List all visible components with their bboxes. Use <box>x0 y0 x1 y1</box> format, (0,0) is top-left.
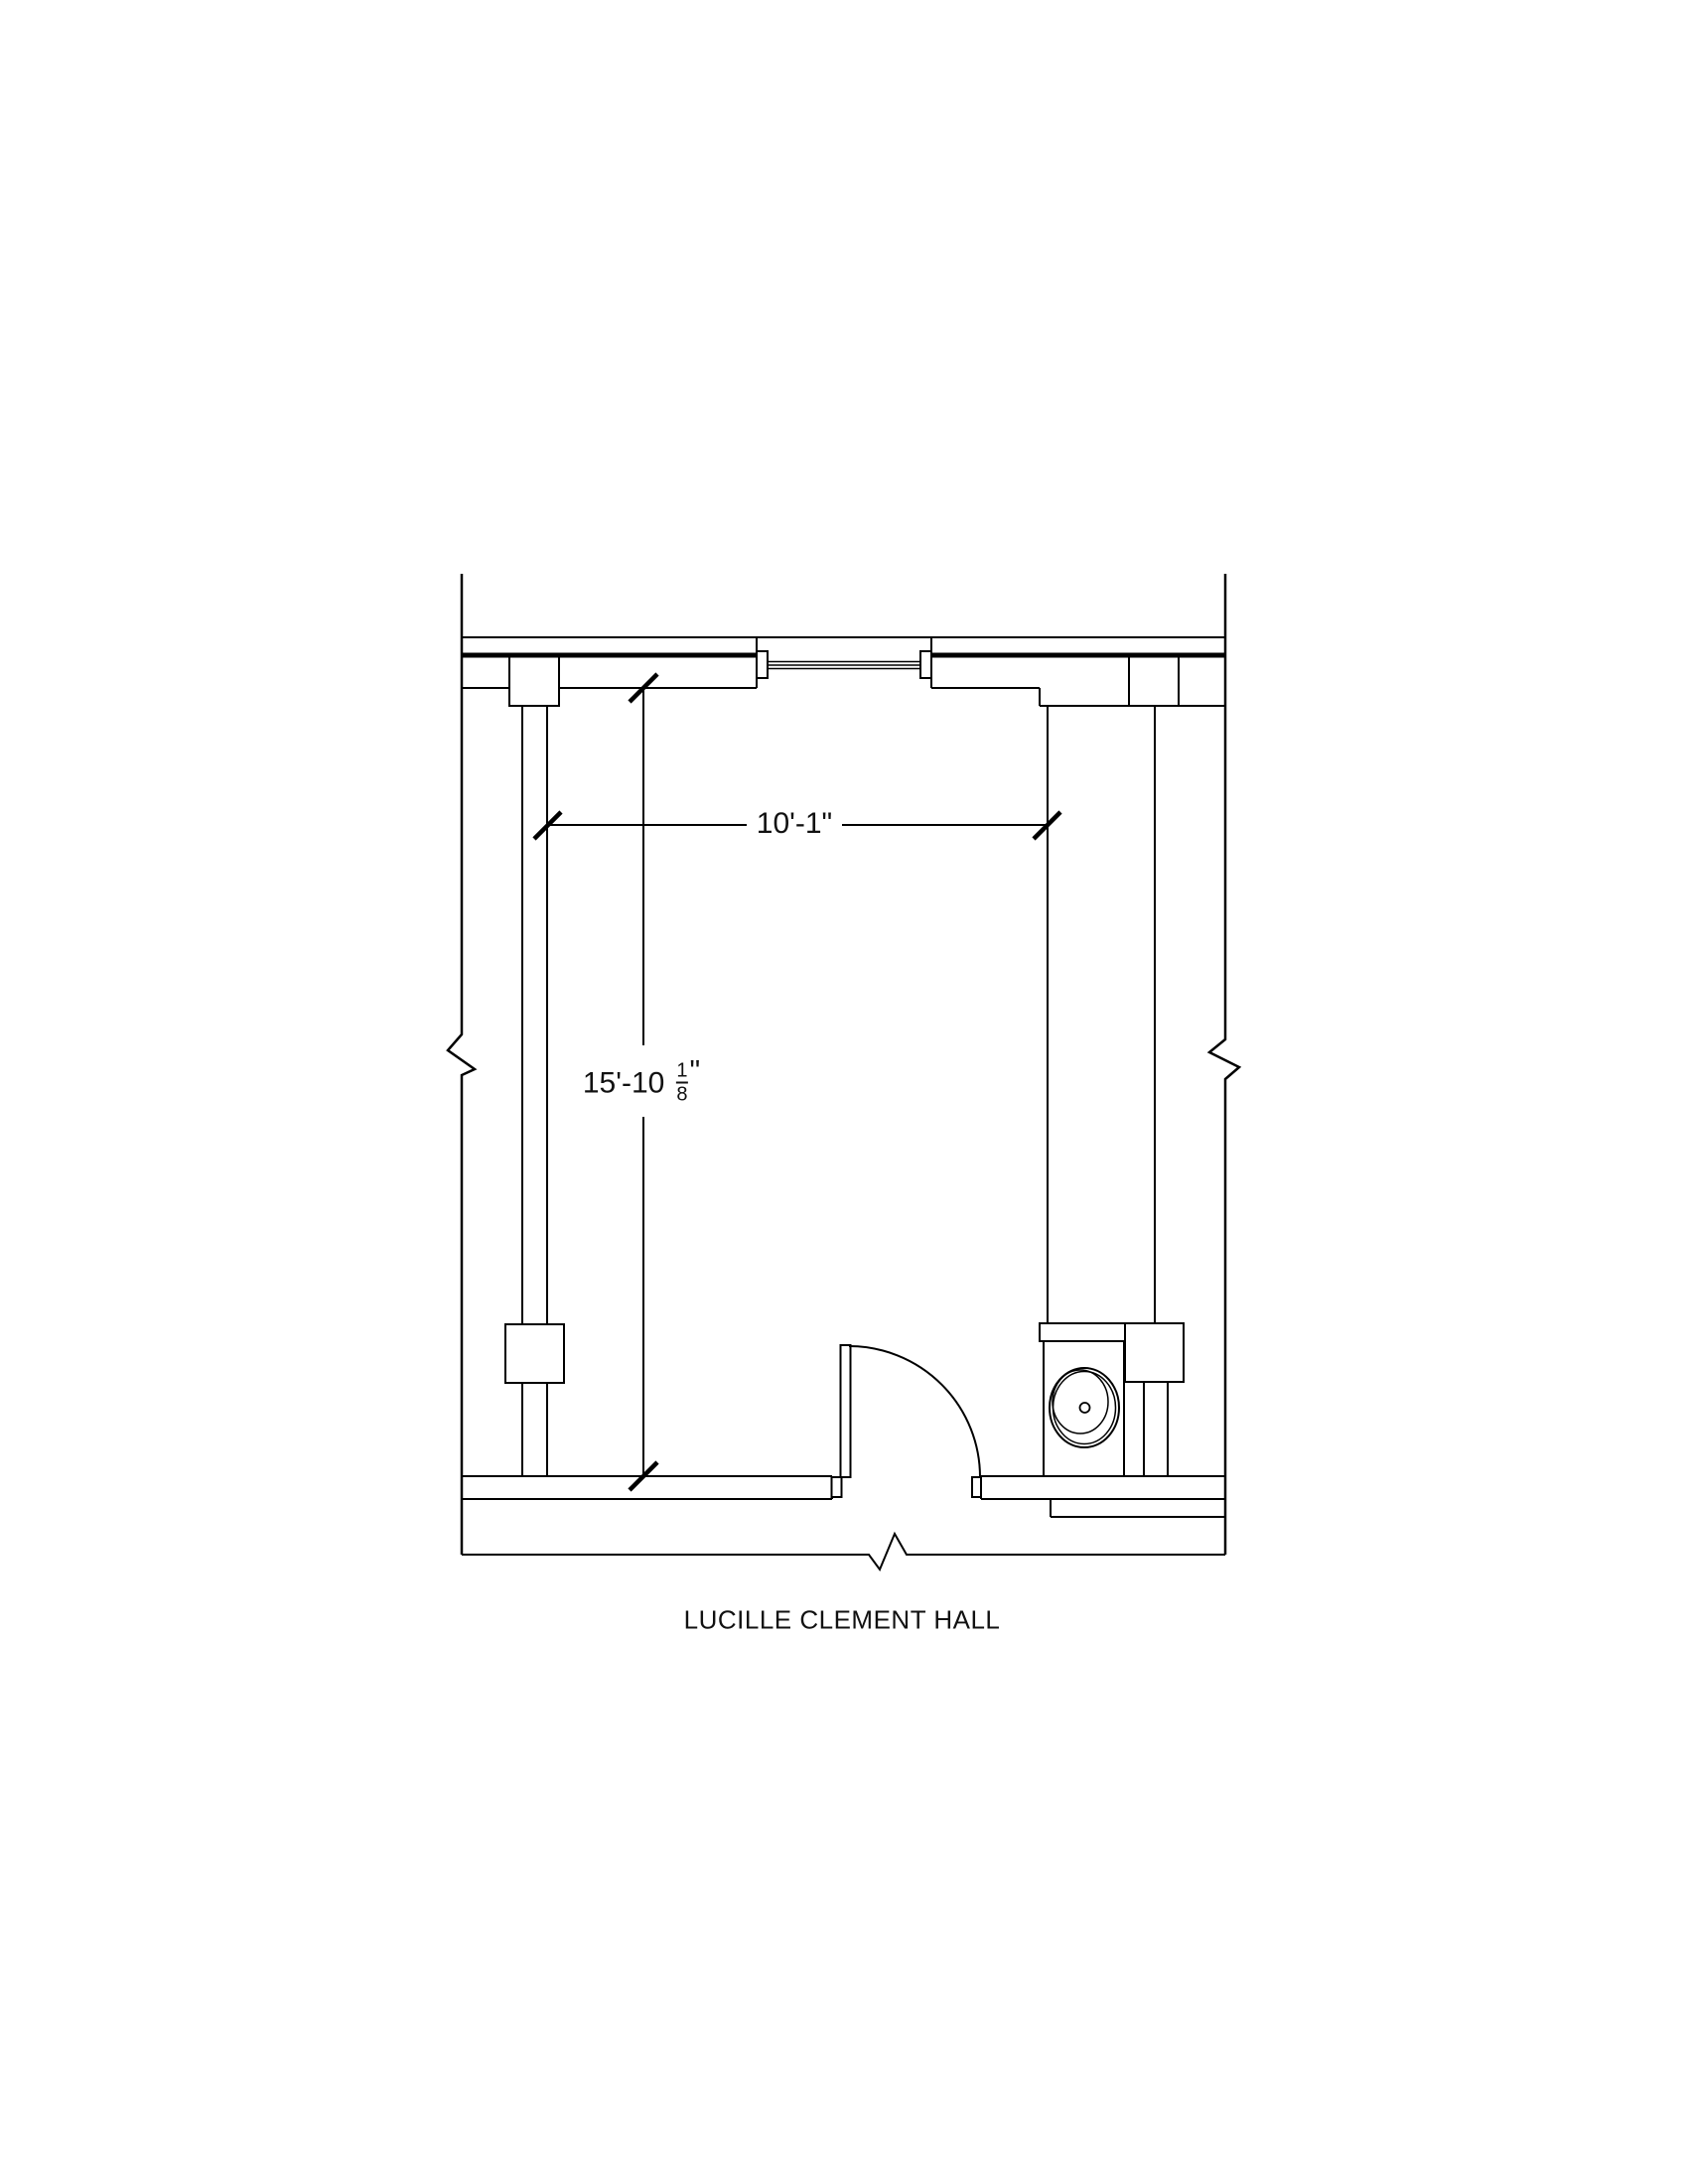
vanity-counter <box>1040 1323 1125 1341</box>
door-swing-arc <box>849 1346 980 1477</box>
top-wall <box>462 637 1225 706</box>
dimension-height-label: 15'-10 1 8 " <box>579 1061 704 1106</box>
dimension-height-fraction: 1 8 <box>676 1061 687 1106</box>
bottom-wall <box>462 1476 1225 1570</box>
door-jamb-left <box>832 1477 842 1497</box>
vanity-side-chase <box>1125 1323 1184 1382</box>
door-jamb-right <box>972 1477 981 1497</box>
fraction-denominator: 8 <box>676 1082 687 1106</box>
bottom-wall-outer-break <box>462 1534 1225 1570</box>
drawing-sheet: 10'-1" 15'-10 1 8 " LUCILLE CLEMENT HALL <box>0 0 1688 2184</box>
exterior-wall-left <box>448 574 475 1555</box>
top-left-pier <box>509 653 559 706</box>
sink-vanity <box>1040 1323 1184 1476</box>
vanity-cabinet <box>1044 1341 1124 1476</box>
left-partition-wall <box>505 706 564 1476</box>
exterior-wall-right <box>1209 574 1239 1555</box>
window-glazing <box>768 662 920 669</box>
door-leaf <box>841 1345 851 1477</box>
window <box>757 651 931 678</box>
dimension-height-whole: 15'-10 <box>583 1068 664 1098</box>
door <box>832 1345 982 1497</box>
fraction-numerator: 1 <box>676 1061 687 1082</box>
dimension-height-unit: " <box>689 1057 700 1087</box>
window-jamb-right <box>920 651 931 678</box>
drawing-title: LUCILLE CLEMENT HALL <box>684 1605 1001 1636</box>
dimension-width-value: 10'-1" <box>757 809 832 839</box>
window-jamb-left <box>757 651 768 678</box>
right-closet-wall <box>1048 706 1155 1323</box>
dimension-width-label: 10'-1" <box>753 809 836 839</box>
floor-plan-canvas <box>0 0 1688 2184</box>
pipe-chase-box <box>505 1324 564 1383</box>
